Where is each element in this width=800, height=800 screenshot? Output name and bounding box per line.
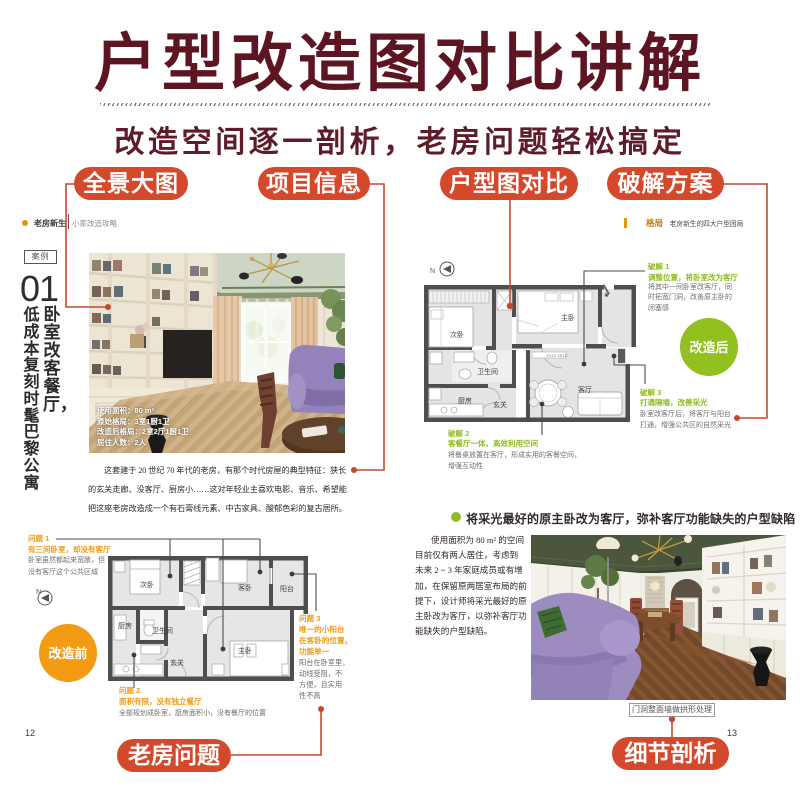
svg-text:玄关: 玄关 — [170, 658, 184, 667]
svg-text:厨房: 厨房 — [118, 621, 132, 630]
svg-text:次卧: 次卧 — [450, 330, 464, 339]
svg-text:主卧: 主卧 — [561, 313, 575, 322]
svg-text:改造前: 改造前 — [48, 646, 87, 661]
svg-text:阳台: 阳台 — [280, 584, 294, 593]
svg-text:玄关: 玄关 — [493, 400, 507, 409]
svg-text:卫生间: 卫生间 — [152, 626, 173, 635]
svg-text:主卧: 主卧 — [238, 646, 252, 655]
svg-text:卫生间: 卫生间 — [477, 367, 498, 376]
svg-text:客厅: 客厅 — [578, 385, 592, 394]
svg-text:客卧: 客卧 — [238, 583, 252, 592]
svg-text:改造后: 改造后 — [689, 340, 728, 355]
svg-text:N: N — [36, 589, 41, 596]
svg-text:❀: ❀ — [604, 292, 609, 299]
svg-text:厨房: 厨房 — [458, 396, 472, 405]
svg-text:4610 4610: 4610 4610 — [546, 353, 568, 358]
svg-text:N: N — [430, 268, 435, 275]
svg-text:次卧: 次卧 — [140, 580, 154, 589]
